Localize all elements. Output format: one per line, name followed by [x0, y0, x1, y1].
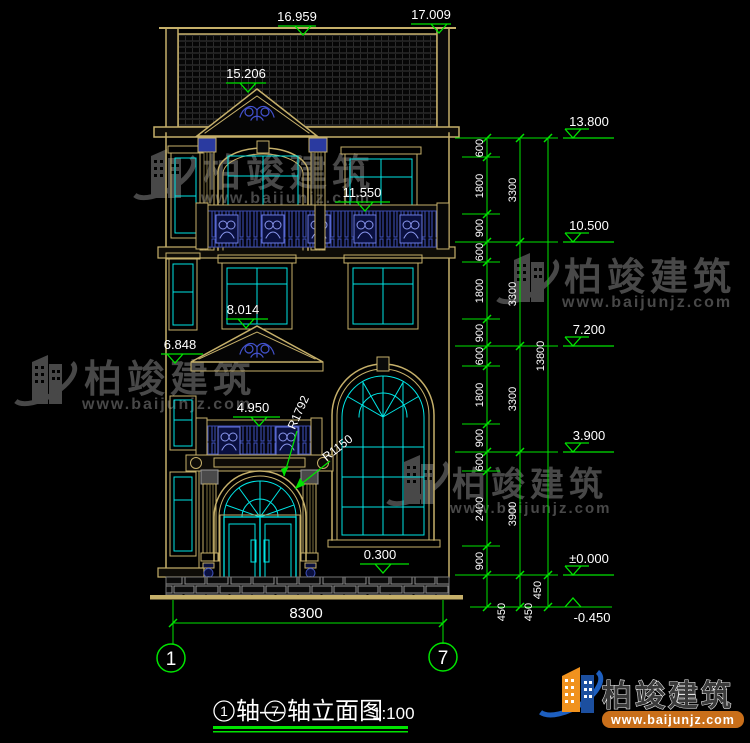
elevation-label: 6.848 [164, 337, 197, 352]
elevation-label: 13.800 [569, 114, 609, 129]
dimension-chains: 600 1800 900 600 1800 900 600 1800 900 6… [455, 134, 612, 621]
elevation-label: 4.950 [237, 400, 270, 415]
elevation-label: 8.014 [227, 302, 260, 317]
watermark-text: 柏竣建筑 [84, 359, 256, 401]
brand-url: www.baijunjz.com [610, 713, 735, 727]
elevation-label: 7.200 [573, 322, 606, 337]
stone-plinth [166, 577, 449, 596]
elevation-label: 16.959 [277, 9, 317, 24]
watermark-left: 柏竣建筑 www.baijunjz.com [12, 355, 256, 413]
dim-label: 450 [496, 603, 508, 621]
elevation-label: 15.206 [226, 66, 266, 81]
dim-label: 600 [474, 453, 486, 471]
watermark-right: 柏竣建筑 www.baijunjz.com [494, 253, 736, 311]
drawing-title: 1 轴— 7 轴立面图 1:100 [213, 698, 415, 733]
dim-label: 900 [474, 552, 486, 570]
watermark-url: www.baijunjz.com [561, 294, 732, 311]
logo-building-blue [581, 675, 594, 713]
dim-label: 3900 [507, 502, 519, 526]
roof [154, 28, 459, 137]
dim-label: 900 [474, 324, 486, 342]
axis-number: 7 [438, 648, 449, 669]
dim-label: 450 [523, 603, 535, 621]
dim-label: 600 [474, 243, 486, 261]
dim-label: 900 [474, 219, 486, 237]
watermark-top: 柏竣建筑 www.baijunjz.com [131, 149, 375, 207]
title-axis1: 1 [220, 703, 228, 719]
dim-label: 3300 [507, 387, 519, 411]
radius-label: R1150 [320, 432, 356, 464]
elevation-label: 11.550 [343, 185, 382, 200]
elevation-markers-right [563, 129, 614, 607]
dimension-ticks [483, 134, 552, 611]
entrance-porch [201, 470, 318, 593]
elevation-label: 10.500 [569, 218, 609, 233]
dim-label: 900 [474, 429, 486, 447]
brand-name: 柏竣建筑 [602, 679, 734, 713]
building-facade [150, 28, 463, 600]
dim-label: 3300 [507, 282, 519, 306]
drawing-sheet: 柏竣建筑 www.baijunjz.com 柏竣建筑 www.baijunjz.… [0, 0, 750, 743]
dim-label: 1800 [474, 279, 486, 303]
elevation-label: 0.300 [364, 547, 397, 562]
dim-label: 13800 [535, 341, 547, 372]
brand-logo: 柏竣建筑 www.baijunjz.com [536, 667, 744, 728]
logo-building-orange [562, 667, 580, 712]
dim-label: 2400 [474, 497, 486, 521]
width-dim-label: 8300 [289, 605, 322, 622]
dim-label: 3300 [507, 178, 519, 202]
watermark-text: 柏竣建筑 [564, 257, 736, 299]
tall-arched-window [328, 357, 440, 547]
elevation-label: 17.009 [411, 7, 451, 22]
cad-elevation-drawing: 柏竣建筑 www.baijunjz.com 柏竣建筑 www.baijunjz.… [0, 0, 750, 743]
dim-label: 600 [474, 139, 486, 157]
axis-number: 1 [166, 649, 177, 670]
axis-dimension: 8300 1 7 [157, 600, 457, 672]
title-scale: 1:100 [372, 704, 415, 723]
dim-label: 450 [532, 581, 544, 599]
dim-label: 1800 [474, 383, 486, 407]
watermark-lower-right: 柏竣建筑 www.baijunjz.com [384, 455, 611, 517]
ground-line [150, 595, 463, 600]
elevation-label: 3.900 [573, 428, 606, 443]
title-axis2: 7 [271, 703, 279, 719]
dim-label: 600 [474, 347, 486, 365]
title-suffix: 轴立面图 [287, 698, 383, 725]
balcony-3f [196, 203, 449, 249]
elevation-label: ±0.000 [569, 551, 609, 566]
dim-label: 1800 [474, 174, 486, 198]
elevation-label: -0.450 [574, 610, 611, 625]
